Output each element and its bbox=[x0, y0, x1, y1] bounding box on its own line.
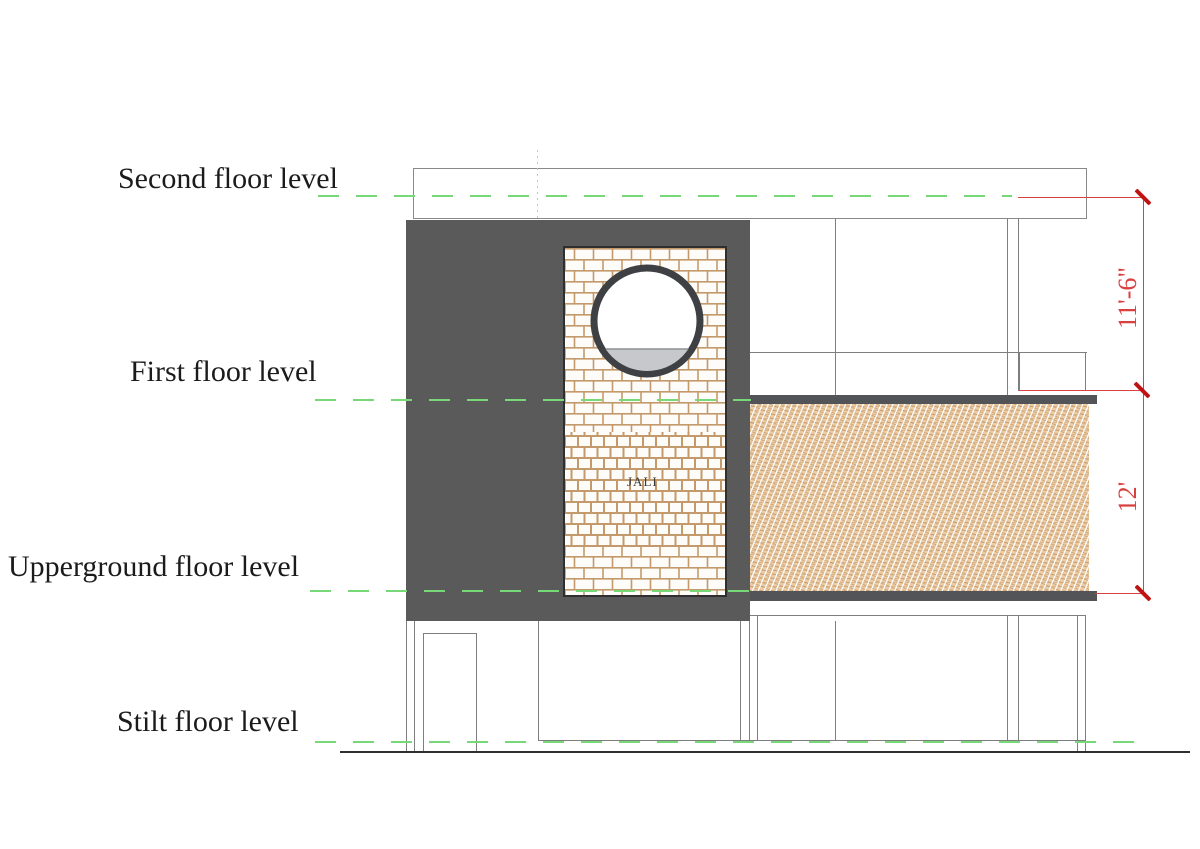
column-line bbox=[1007, 615, 1008, 741]
column-line bbox=[1077, 615, 1078, 752]
column-line bbox=[1018, 615, 1019, 741]
level-label-second-floor: Second floor level bbox=[118, 162, 338, 196]
column-line bbox=[749, 621, 750, 741]
jali-panel bbox=[563, 246, 727, 597]
column-line bbox=[1007, 219, 1008, 395]
jali-label: JALI bbox=[627, 474, 658, 490]
parapet-end-box bbox=[1019, 352, 1086, 391]
column-line bbox=[835, 219, 836, 395]
level-label-stilt: Stilt floor level bbox=[117, 705, 299, 739]
level-line-second-floor bbox=[318, 195, 1012, 197]
column-line bbox=[835, 621, 836, 741]
brick-hatch-wall bbox=[750, 404, 1089, 591]
level-line-first-floor bbox=[315, 399, 751, 401]
column-line bbox=[740, 621, 741, 741]
dim-extension-second-floor bbox=[1018, 197, 1144, 198]
dimension-label-11-6: 11'-6" bbox=[1113, 267, 1143, 329]
column-line bbox=[406, 621, 407, 752]
centerline-dotted bbox=[537, 150, 538, 219]
column-line bbox=[414, 621, 415, 752]
column-line bbox=[538, 621, 539, 741]
brick-field-bottom bbox=[565, 547, 725, 595]
roof-slab bbox=[413, 168, 1087, 219]
level-label-upperground: Upperground floor level bbox=[8, 550, 299, 584]
level-label-first-floor: First floor level bbox=[130, 355, 317, 389]
beam-bottom-line bbox=[750, 615, 1086, 616]
elevation-drawing: JALI Second floor level First floor leve… bbox=[0, 0, 1200, 849]
dim-extension-upperground bbox=[1095, 593, 1143, 594]
floor-slab-band-top bbox=[750, 395, 1097, 404]
column-line bbox=[1085, 615, 1086, 752]
ground-line bbox=[340, 751, 1190, 753]
dim-extension-first-floor bbox=[1020, 390, 1142, 391]
door-opening bbox=[423, 633, 477, 752]
level-line-stilt bbox=[315, 741, 1145, 743]
column-line bbox=[757, 615, 758, 741]
floor-slab-band-bottom bbox=[750, 591, 1097, 601]
dimension-label-12: 12' bbox=[1113, 482, 1143, 513]
level-line-upperground bbox=[310, 590, 751, 592]
